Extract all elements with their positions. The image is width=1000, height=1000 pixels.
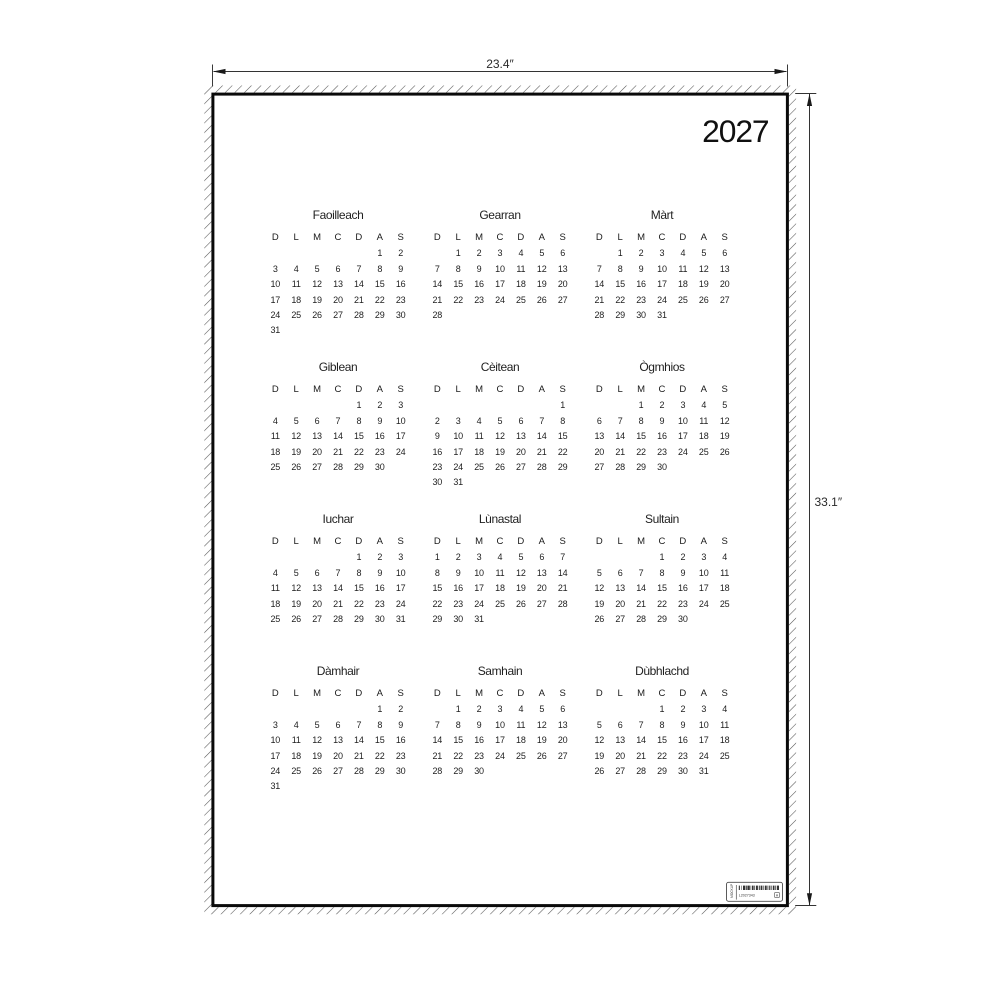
svg-text:L2027343: L2027343	[739, 893, 755, 897]
svg-text:MOCKUP: MOCKUP	[730, 884, 734, 898]
